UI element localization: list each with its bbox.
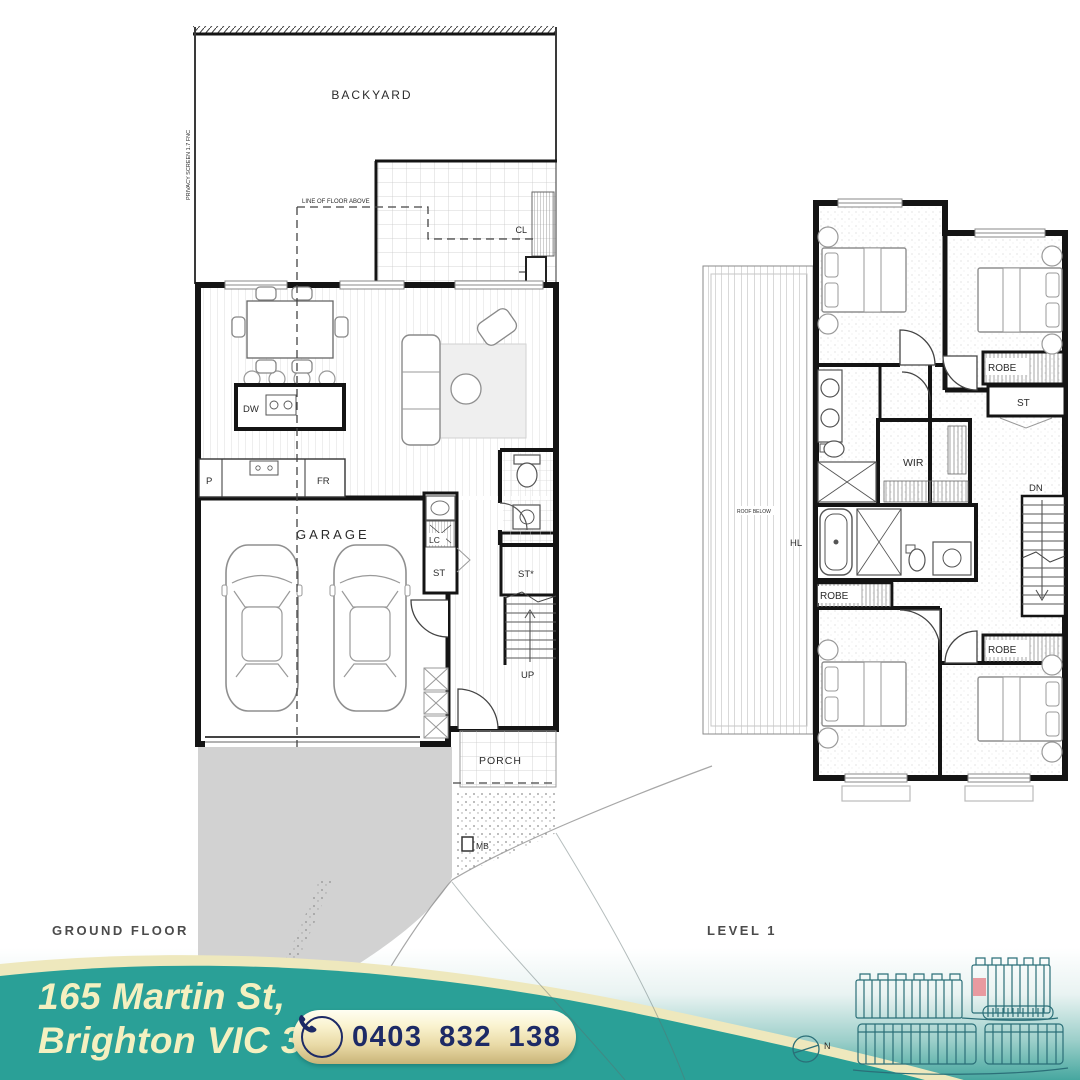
bed (822, 662, 906, 726)
toilet (517, 463, 537, 487)
sink (266, 395, 296, 415)
wir-label: WIR (903, 457, 924, 469)
toilet (909, 549, 925, 571)
ground-floor-title: GROUND FLOOR (52, 923, 189, 938)
robe-label: ROBE (988, 645, 1017, 656)
sofa (402, 335, 440, 445)
garage-label: GARAGE (296, 527, 370, 542)
roof-below (703, 266, 815, 734)
privacy-screen-label: PRIVACY SCREEN 1.7 FNC (186, 130, 192, 200)
address-line-1: 165 Martin St, (38, 978, 286, 1015)
roof-below-label: ROOF BELOW (737, 509, 771, 515)
level-1-title: LEVEL 1 (707, 923, 777, 938)
garden-bed (455, 790, 556, 877)
stairs-down: DN (1022, 483, 1065, 616)
dn-label: DN (1029, 483, 1043, 494)
mb-label: MB (476, 841, 489, 851)
car-left (222, 545, 302, 711)
meter-box (462, 837, 473, 851)
bed (978, 268, 1062, 332)
backyard-label: BACKYARD (331, 88, 412, 102)
hl-label: HL (790, 538, 802, 549)
basin (520, 510, 534, 524)
bed (978, 677, 1062, 741)
clothesline (532, 192, 554, 256)
st-label: ST (433, 568, 445, 579)
floorplan-graphic: BACKYARD PRIVACY SCREEN 1.7 FNC CL A/C P… (0, 0, 1080, 1080)
pantry-label: P (206, 476, 212, 487)
robe-label: ROBE (820, 591, 849, 602)
powder-room (500, 453, 553, 542)
garage-door (205, 734, 420, 747)
phone-number: 0403 832 138 (352, 1021, 561, 1054)
st-star-label: ST* (518, 569, 534, 580)
dishwasher-label: DW (243, 404, 259, 415)
fridge-label: FR (317, 476, 330, 487)
car-right (330, 545, 410, 711)
compass-n-label: N (824, 1041, 831, 1051)
basin (943, 549, 961, 567)
kitchen-bench: P FR (199, 459, 345, 497)
lc-label: LC (429, 535, 440, 545)
st-label: ST (1017, 398, 1030, 409)
cooktop (250, 461, 278, 475)
highlighted-unit (973, 978, 986, 996)
robe-bath: ROBE (816, 583, 892, 608)
clothesline-label: CL (515, 225, 527, 235)
bed (822, 248, 906, 312)
up-label: UP (521, 670, 534, 681)
phone-icon (301, 1016, 343, 1058)
robe-bed2: ROBE (983, 352, 1065, 384)
phone-pill: 0403 832 138 (293, 1010, 576, 1064)
coffee-table (451, 374, 481, 404)
level-1-plan: ROOF BELOW ROBE (703, 199, 1065, 801)
porch-label: PORCH (479, 755, 522, 767)
toilet (824, 441, 844, 457)
flyer-canvas: BACKYARD PRIVACY SCREEN 1.7 FNC CL A/C P… (0, 0, 1080, 1080)
lofa-label-top: LINE OF FLOOR ABOVE (302, 199, 370, 205)
ground-floor-plan: BACKYARD PRIVACY SCREEN 1.7 FNC CL A/C P… (186, 26, 557, 798)
storage-boxes (424, 668, 448, 738)
robe-label: ROBE (988, 363, 1017, 374)
